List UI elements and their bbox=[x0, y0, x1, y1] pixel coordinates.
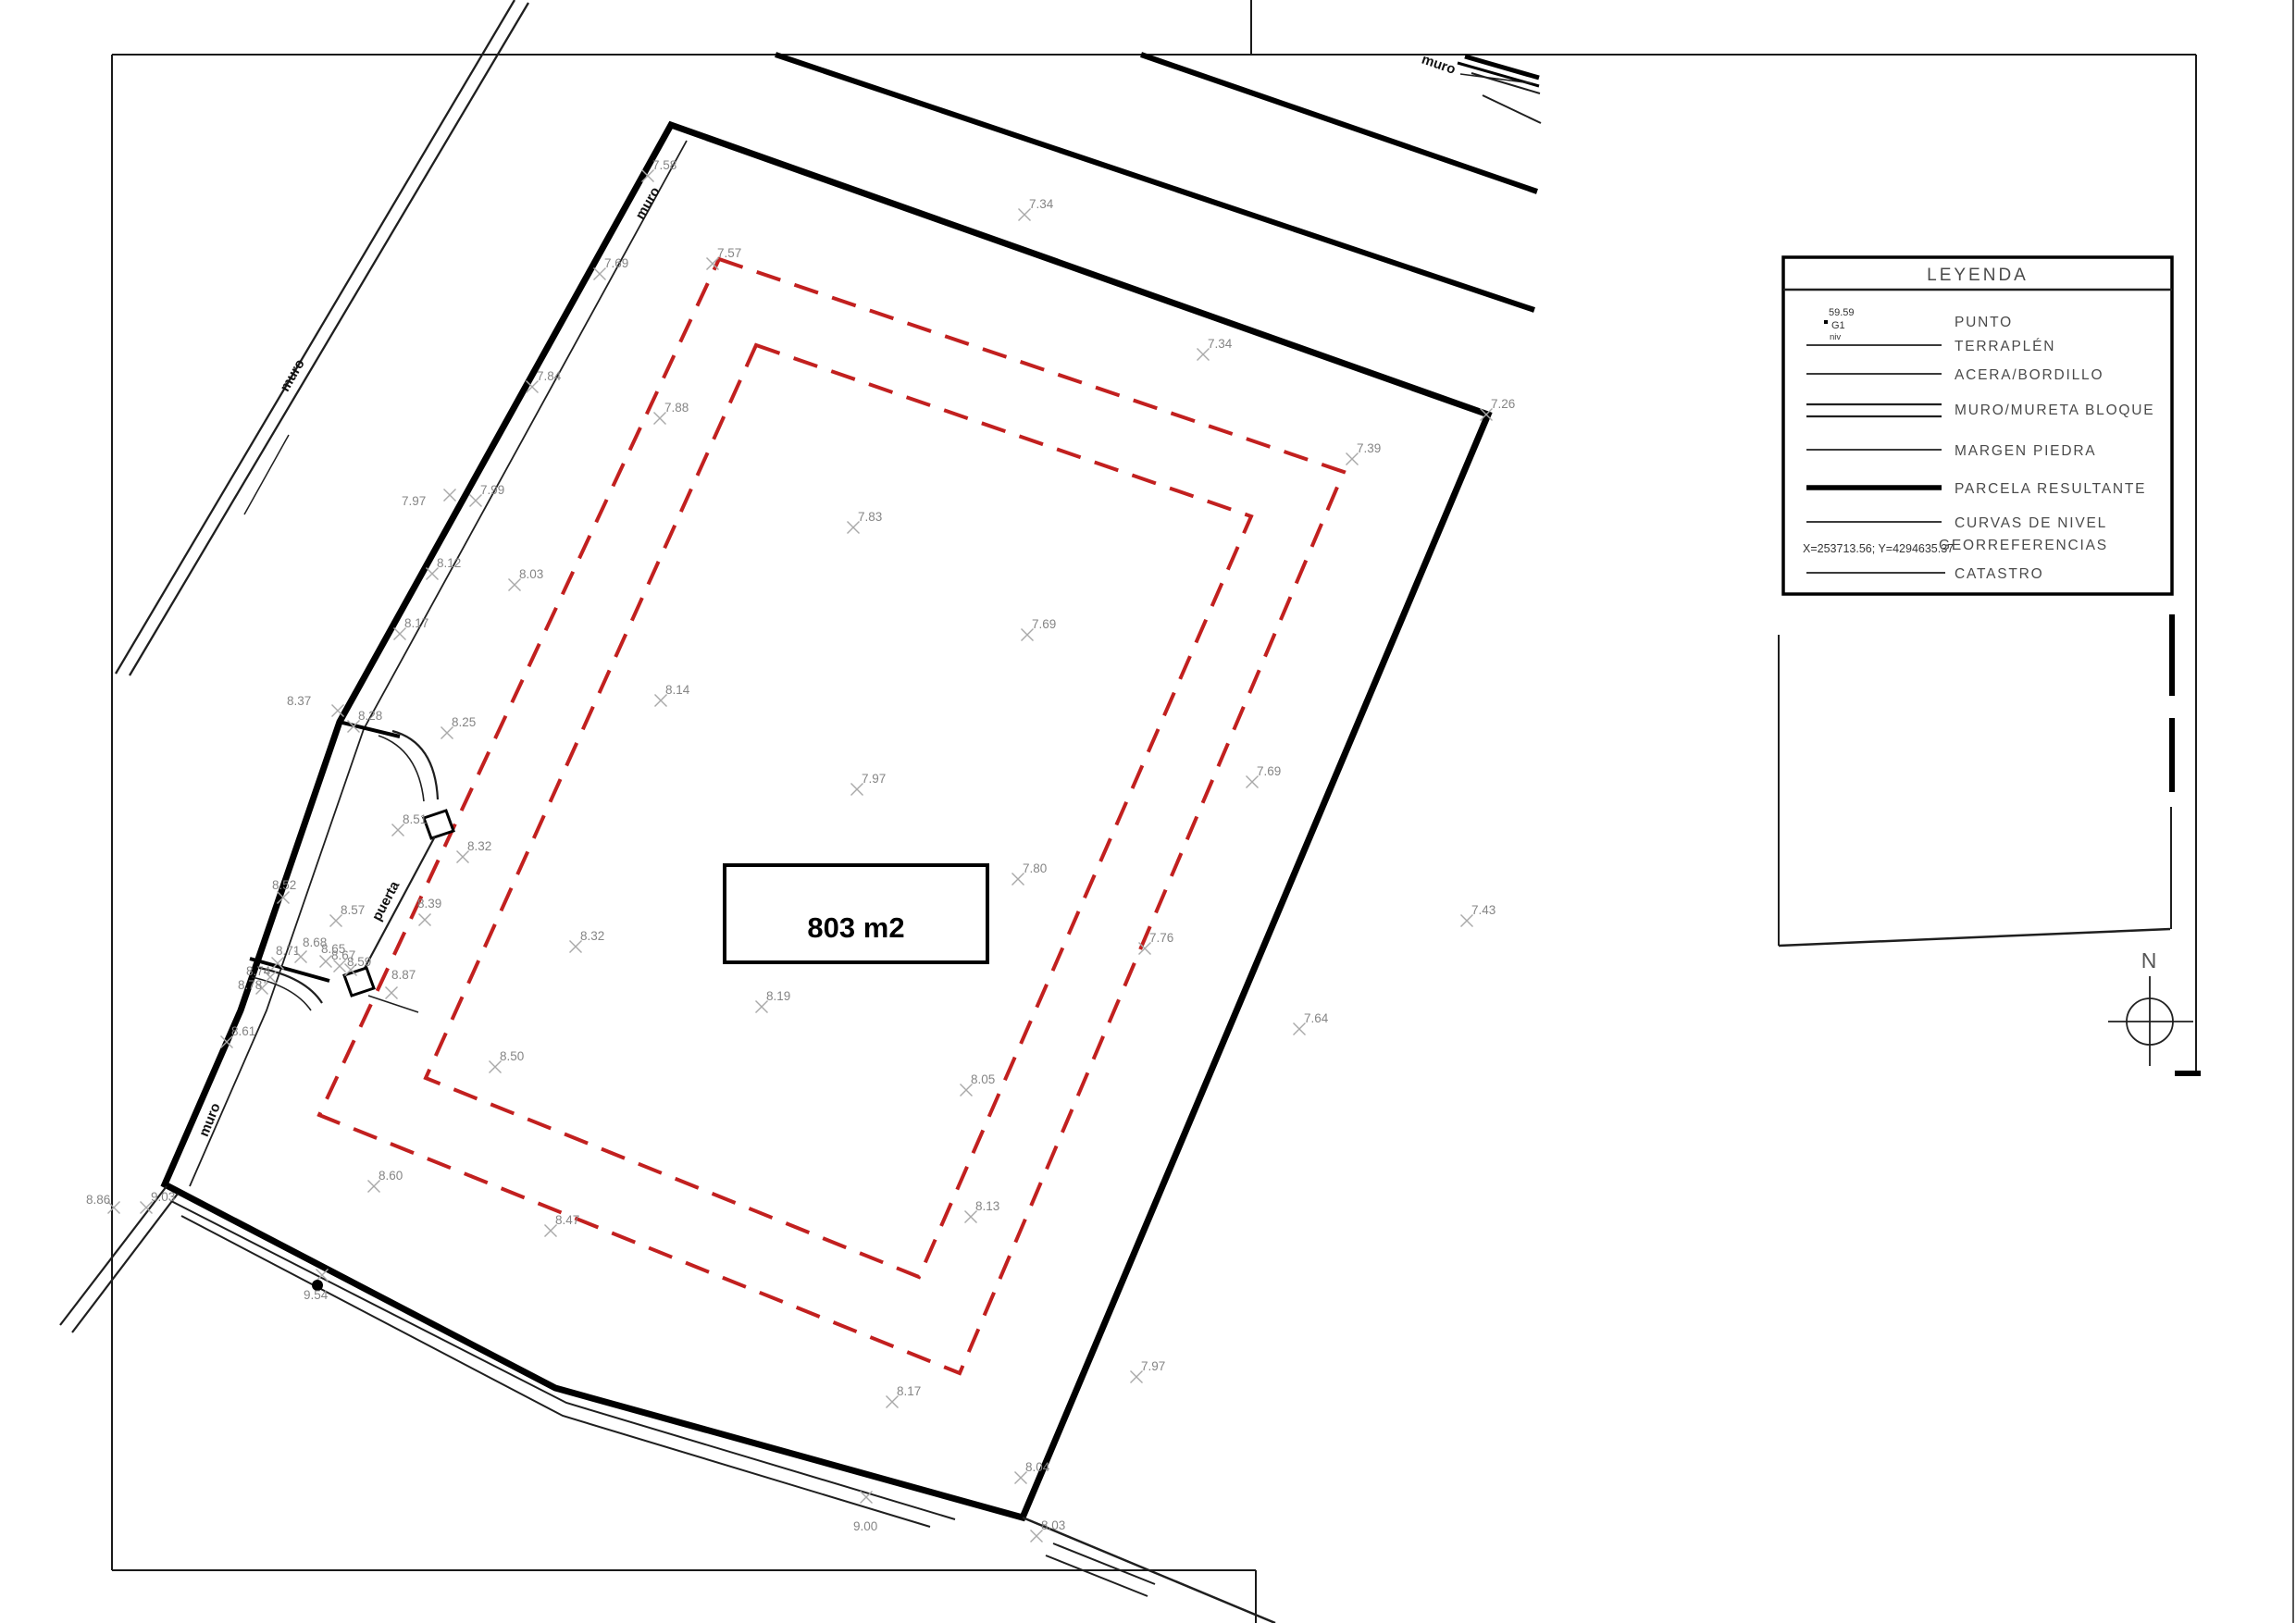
survey-point: 7.83 bbox=[848, 510, 883, 534]
point-elevation-label: 8.39 bbox=[417, 897, 441, 911]
point-elevation-label: 8.03 bbox=[519, 567, 543, 581]
point-elevation-label: 7.97 bbox=[402, 494, 426, 508]
legend-item-label: MURO/MURETA BLOQUE bbox=[1955, 403, 2154, 418]
survey-point: 8.32 bbox=[457, 839, 492, 863]
north-label: N bbox=[2141, 948, 2157, 973]
panel-bottom-line bbox=[1779, 929, 2170, 946]
point-elevation-label: 7.69 bbox=[1257, 764, 1281, 778]
wall-leader-line bbox=[1460, 74, 1532, 83]
legend-item-label: TERRAPLÉN bbox=[1955, 339, 2055, 354]
survey-point: 8.51 bbox=[392, 812, 428, 836]
wall-line bbox=[1483, 95, 1541, 123]
survey-point: 8.37 bbox=[287, 694, 344, 717]
point-elevation-label: 8.57 bbox=[341, 903, 365, 917]
legend-punto-sub: niv bbox=[1830, 332, 1841, 342]
survey-point: 8.57 bbox=[330, 903, 366, 927]
point-elevation-label: 8.86 bbox=[86, 1193, 110, 1207]
wall-continuation bbox=[72, 1194, 178, 1332]
plan-sheet: 803 m2 LEYENDA 59.59 G1 niv PUNTO TERRAP… bbox=[0, 0, 2296, 1623]
setback-rectangles bbox=[319, 259, 1344, 1373]
point-elevation-label: 9.03 bbox=[151, 1190, 175, 1204]
legend: LEYENDA 59.59 G1 niv PUNTO TERRAPLÉN ACE… bbox=[1783, 257, 2172, 594]
point-elevation-label: 8.05 bbox=[971, 1072, 995, 1086]
legend-item-label: GEORREFERENCIAS bbox=[1939, 538, 2108, 553]
point-elevation-label: 8.51 bbox=[403, 812, 427, 826]
area-box: 803 m2 bbox=[725, 865, 987, 962]
point-elevation-label: 8.14 bbox=[665, 683, 690, 697]
legend-punto-id: G1 bbox=[1831, 320, 1845, 331]
survey-point: 7.97 bbox=[851, 772, 887, 796]
wall-inner-parallel bbox=[190, 141, 687, 1186]
point-elevation-label: 8.28 bbox=[358, 709, 382, 723]
point-elevation-label: 7.34 bbox=[1208, 337, 1233, 351]
survey-point: 7.97 bbox=[1131, 1359, 1166, 1383]
wall-double-line bbox=[130, 3, 528, 675]
point-elevation-label: 8.32 bbox=[580, 929, 604, 943]
survey-point: 7.43 bbox=[1461, 903, 1496, 927]
point-elevation-label: 9.54 bbox=[304, 1288, 329, 1302]
survey-point: 8.60 bbox=[368, 1169, 403, 1193]
parcel-outline bbox=[165, 125, 1488, 1518]
right-panel-outline bbox=[1779, 614, 2172, 946]
legend-georef-value: X=253713.56; Y=4294635.37 bbox=[1803, 542, 1954, 555]
point-elevation-label: 9.00 bbox=[853, 1519, 877, 1533]
gate-tail-line bbox=[368, 996, 418, 1012]
survey-point: 8.50 bbox=[490, 1049, 525, 1073]
survey-point: 9.03 bbox=[141, 1190, 176, 1214]
legend-item-label: CURVAS DE NIVEL bbox=[1955, 515, 2107, 531]
survey-point: 7.34 bbox=[1019, 197, 1054, 221]
survey-point: 8.04 bbox=[1015, 1460, 1050, 1484]
inner-red-dashed-rectangle bbox=[426, 345, 1251, 1277]
point-elevation-label: 8.47 bbox=[555, 1213, 579, 1227]
point-elevation-label: 8.71 bbox=[276, 944, 300, 958]
road-line bbox=[776, 55, 1534, 310]
point-elevation-label: 7.99 bbox=[480, 483, 504, 497]
survey-point: 8.86 bbox=[86, 1193, 120, 1214]
survey-point: 7.97 bbox=[402, 489, 456, 509]
point-elevation-label: 8.37 bbox=[287, 694, 311, 708]
wall-stub bbox=[339, 722, 400, 737]
point-elevation-label: 8.74 bbox=[246, 964, 271, 978]
survey-point: 8.25 bbox=[441, 715, 477, 739]
survey-point: 7.39 bbox=[1347, 441, 1382, 465]
point-elevation-label: 7.97 bbox=[862, 772, 886, 786]
sidewalk-line bbox=[181, 1216, 930, 1527]
survey-point: 7.34 bbox=[1198, 337, 1233, 361]
point-elevation-label: 7.69 bbox=[604, 256, 628, 270]
point-elevation-label: 8.17 bbox=[897, 1384, 921, 1398]
point-elevation-label: 7.83 bbox=[858, 510, 882, 524]
legend-title: LEYENDA bbox=[1927, 266, 2029, 285]
point-elevation-label: 7.39 bbox=[1357, 441, 1381, 455]
survey-point: 7.69 bbox=[1022, 617, 1057, 641]
point-elevation-label: 8.03 bbox=[1041, 1518, 1065, 1532]
point-elevation-label: 7.84 bbox=[537, 369, 562, 383]
wall-label: muro bbox=[277, 356, 307, 394]
point-elevation-label: 8.61 bbox=[231, 1024, 255, 1038]
legend-item-label: PUNTO bbox=[1955, 315, 2013, 330]
point-elevation-label: 7.97 bbox=[1141, 1359, 1165, 1373]
point-elevation-label: 7.76 bbox=[1149, 931, 1173, 945]
survey-point: 7.88 bbox=[654, 401, 689, 425]
area-label: 803 m2 bbox=[807, 911, 904, 944]
point-elevation-label: 8.12 bbox=[437, 556, 461, 570]
point-elevation-label: 8.13 bbox=[975, 1199, 999, 1213]
point-elevation-label: 8.87 bbox=[391, 968, 416, 982]
point-elevation-label: 8.19 bbox=[766, 989, 790, 1003]
point-elevation-label: 8.04 bbox=[1025, 1460, 1050, 1474]
survey-point: 8.17 bbox=[887, 1384, 922, 1408]
survey-point: 9.00 bbox=[853, 1492, 877, 1534]
legend-item-label: MARGEN PIEDRA bbox=[1955, 443, 2096, 459]
survey-point: 7.69 bbox=[1247, 764, 1282, 788]
outer-red-dashed-rectangle bbox=[319, 259, 1344, 1373]
survey-point: 8.47 bbox=[545, 1213, 580, 1237]
point-elevation-label: 7.80 bbox=[1023, 861, 1047, 875]
survey-point: 8.32 bbox=[570, 929, 605, 953]
survey-point: 8.03 bbox=[509, 567, 544, 591]
point-elevation-label: 7.26 bbox=[1491, 397, 1515, 411]
point-elevation-label: 7.43 bbox=[1471, 903, 1496, 917]
point-elevation-label: 8.78 bbox=[238, 978, 262, 992]
gate-label: puerta bbox=[369, 878, 403, 923]
survey-point: 8.05 bbox=[961, 1072, 996, 1096]
point-elevation-label: 7.64 bbox=[1304, 1011, 1329, 1025]
survey-point: 8.87 bbox=[386, 968, 416, 999]
point-elevation-label: 8.59 bbox=[347, 955, 371, 969]
survey-point: 8.71 bbox=[272, 944, 301, 970]
point-elevation-label: 7.57 bbox=[717, 246, 741, 260]
legend-punto-dot bbox=[1824, 320, 1828, 324]
point-elevation-label: 8.32 bbox=[467, 839, 491, 853]
survey-point: 8.19 bbox=[756, 989, 791, 1013]
point-elevation-label: 8.52 bbox=[272, 878, 296, 892]
survey-point: 7.64 bbox=[1294, 1011, 1329, 1035]
point-elevation-label: 8.25 bbox=[452, 715, 476, 729]
point-elevation-label: 8.50 bbox=[500, 1049, 524, 1063]
gate-swing-arc bbox=[392, 731, 438, 799]
point-elevation-label: 8.60 bbox=[379, 1169, 403, 1183]
legend-item-label: ACERA/BORDILLO bbox=[1955, 367, 2104, 383]
survey-point: 8.14 bbox=[655, 683, 690, 707]
point-elevation-label: 7.88 bbox=[664, 401, 689, 415]
survey-point: 8.13 bbox=[965, 1199, 1000, 1223]
point-elevation-label: 8.17 bbox=[404, 616, 428, 630]
survey-point: 7.80 bbox=[1012, 861, 1048, 886]
wall-double-line bbox=[116, 0, 515, 674]
north-compass: N bbox=[2108, 948, 2193, 1066]
roads-and-walls bbox=[116, 0, 1541, 675]
survey-point: 8.39 bbox=[417, 897, 441, 926]
point-elevation-label: 7.34 bbox=[1029, 197, 1054, 211]
legend-punto-elev: 59.59 bbox=[1829, 307, 1855, 318]
site-plan-drawing: 803 m2 LEYENDA 59.59 G1 niv PUNTO TERRAP… bbox=[0, 0, 2296, 1623]
legend-item-label: PARCELA RESULTANTE bbox=[1955, 481, 2146, 497]
point-elevation-label: 7.58 bbox=[652, 158, 676, 172]
legend-item-label: CATASTRO bbox=[1955, 566, 2044, 582]
point-elevation-label: 7.69 bbox=[1032, 617, 1056, 631]
